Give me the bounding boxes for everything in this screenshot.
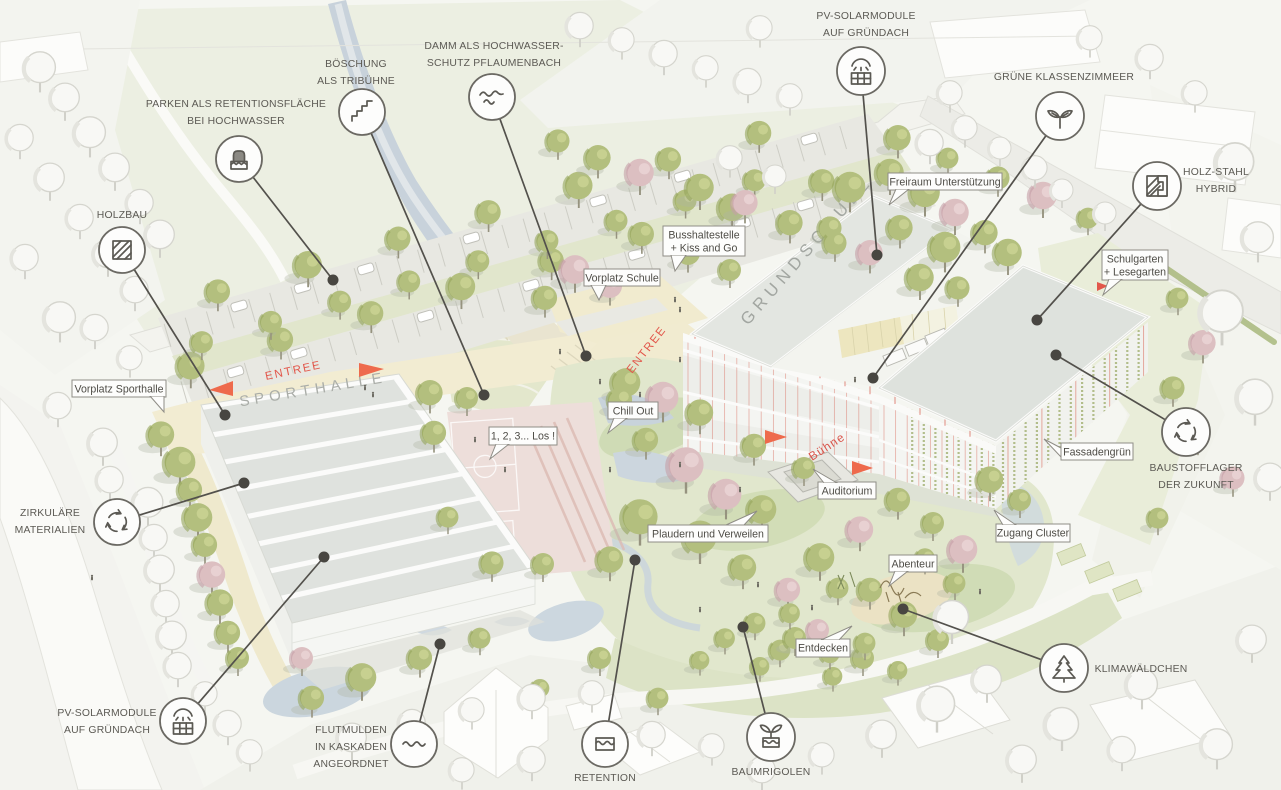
svg-text:Zugang Cluster: Zugang Cluster — [997, 528, 1070, 540]
svg-text:HOLZ-STAHL: HOLZ-STAHL — [1183, 167, 1249, 178]
svg-text:Auditorium: Auditorium — [822, 486, 873, 498]
svg-text:HOLZBAU: HOLZBAU — [97, 210, 147, 221]
svg-text:IN KASKADEN: IN KASKADEN — [315, 742, 387, 753]
svg-text:Freiraum Unterstützung: Freiraum Unterstützung — [889, 177, 1000, 189]
svg-text:Busshaltestelle: Busshaltestelle — [668, 230, 739, 242]
svg-text:BEI HOCHWASSER: BEI HOCHWASSER — [187, 116, 285, 127]
svg-text:Schulgarten: Schulgarten — [1107, 254, 1164, 266]
svg-text:PARKEN ALS RETENTIONSFLÄCHE: PARKEN ALS RETENTIONSFLÄCHE — [146, 98, 326, 110]
svg-text:ZIRKULÄRE: ZIRKULÄRE — [20, 507, 80, 519]
svg-text:BAUSTOFFLAGER: BAUSTOFFLAGER — [1149, 463, 1242, 474]
svg-text:ANGEORDNET: ANGEORDNET — [313, 759, 389, 770]
svg-text:KLIMAWÄLDCHEN: KLIMAWÄLDCHEN — [1095, 663, 1188, 675]
svg-text:GRÜNE KLASSENZIMMEER: GRÜNE KLASSENZIMMEER — [994, 71, 1135, 83]
svg-text:FLUTMULDEN: FLUTMULDEN — [315, 725, 387, 736]
svg-text:Plaudern und Verweilen: Plaudern und Verweilen — [652, 529, 764, 541]
svg-text:SCHUTZ PFLAUMENBACH: SCHUTZ PFLAUMENBACH — [427, 58, 561, 69]
svg-text:MATERIALIEN: MATERIALIEN — [15, 525, 86, 536]
svg-text:+ Lesegarten: + Lesegarten — [1104, 267, 1166, 279]
svg-text:RETENTION: RETENTION — [574, 773, 636, 784]
svg-text:Chill Out: Chill Out — [613, 406, 654, 418]
svg-text:DER ZUKUNFT: DER ZUKUNFT — [1158, 480, 1234, 491]
svg-text:Entdecken: Entdecken — [798, 643, 848, 655]
svg-text:+ Kiss and Go: + Kiss and Go — [671, 243, 738, 255]
svg-text:Fassadengrün: Fassadengrün — [1063, 447, 1131, 459]
svg-text:PV-SOLARMODULE: PV-SOLARMODULE — [816, 11, 915, 22]
svg-text:PV-SOLARMODULE: PV-SOLARMODULE — [57, 708, 156, 719]
svg-text:ALS TRIBÜHNE: ALS TRIBÜHNE — [317, 75, 395, 87]
svg-text:Vorplatz Sporthalle: Vorplatz Sporthalle — [75, 384, 164, 396]
svg-text:DAMM ALS HOCHWASSER-: DAMM ALS HOCHWASSER- — [424, 41, 563, 52]
svg-text:BÖSCHUNG: BÖSCHUNG — [325, 58, 387, 70]
svg-text:Abenteur: Abenteur — [892, 559, 935, 571]
svg-text:AUF GRÜNDACH: AUF GRÜNDACH — [64, 724, 150, 736]
svg-text:HYBRID: HYBRID — [1196, 184, 1236, 195]
svg-text:Vorplatz Schule: Vorplatz Schule — [585, 273, 659, 285]
svg-text:AUF GRÜNDACH: AUF GRÜNDACH — [823, 27, 909, 39]
svg-text:1, 2, 3... Los !: 1, 2, 3... Los ! — [491, 431, 555, 443]
svg-text:BAUMRIGOLEN: BAUMRIGOLEN — [732, 767, 811, 778]
